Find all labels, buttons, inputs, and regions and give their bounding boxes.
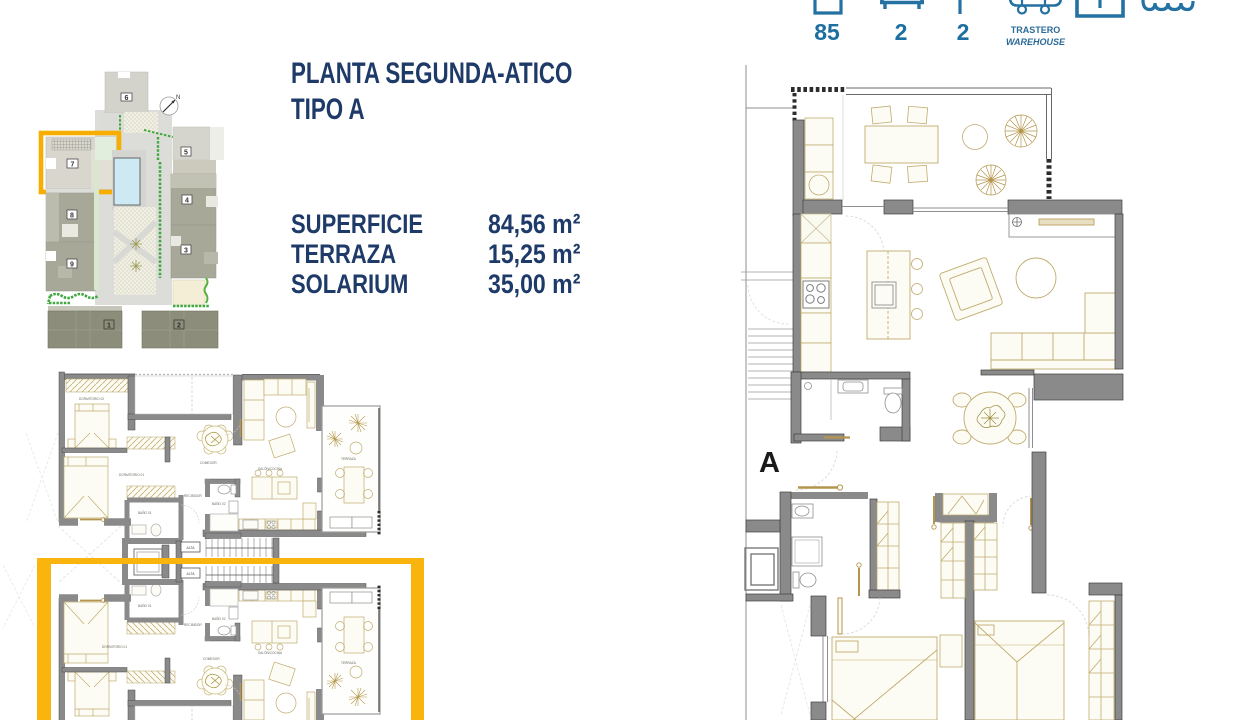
svg-text:COMEDOR: COMEDOR — [203, 657, 220, 661]
svg-text:RECIBIDOR: RECIBIDOR — [184, 623, 202, 627]
svg-text:RECIBIDOR: RECIBIDOR — [184, 494, 202, 498]
svg-text:9: 9 — [70, 261, 74, 268]
svg-text:BAÑO 02: BAÑO 02 — [212, 501, 226, 506]
svg-text:4: 4 — [185, 197, 189, 204]
svg-text:7: 7 — [71, 161, 75, 168]
svg-text:ALTA: ALTA — [187, 572, 196, 576]
svg-text:COMEDOR: COMEDOR — [200, 461, 217, 465]
svg-text:8: 8 — [70, 212, 74, 219]
svg-text:3: 3 — [184, 247, 188, 254]
svg-text:BAÑO 02: BAÑO 02 — [212, 616, 226, 621]
svg-text:6: 6 — [125, 95, 129, 102]
svg-text:DORMITORIO 02: DORMITORIO 02 — [79, 397, 104, 401]
svg-text:DORMITORIO 01: DORMITORIO 01 — [119, 473, 144, 477]
svg-text:5: 5 — [184, 149, 188, 156]
svg-text:SALÓN/COCINA: SALÓN/COCINA — [258, 650, 283, 655]
svg-text:BAÑO 01: BAÑO 01 — [138, 510, 152, 515]
svg-text:TERRAZA: TERRAZA — [341, 661, 357, 665]
svg-text:DORMITORIO 01: DORMITORIO 01 — [102, 645, 127, 649]
svg-text:1: 1 — [107, 322, 111, 329]
svg-text:BAÑO 01: BAÑO 01 — [138, 603, 152, 608]
svg-text:TERRAZA: TERRAZA — [341, 457, 357, 461]
svg-text:SALÓN/COCINA: SALÓN/COCINA — [258, 466, 283, 471]
svg-text:2: 2 — [177, 322, 181, 329]
svg-text:N: N — [176, 95, 180, 101]
svg-text:ALTA: ALTA — [187, 546, 196, 550]
